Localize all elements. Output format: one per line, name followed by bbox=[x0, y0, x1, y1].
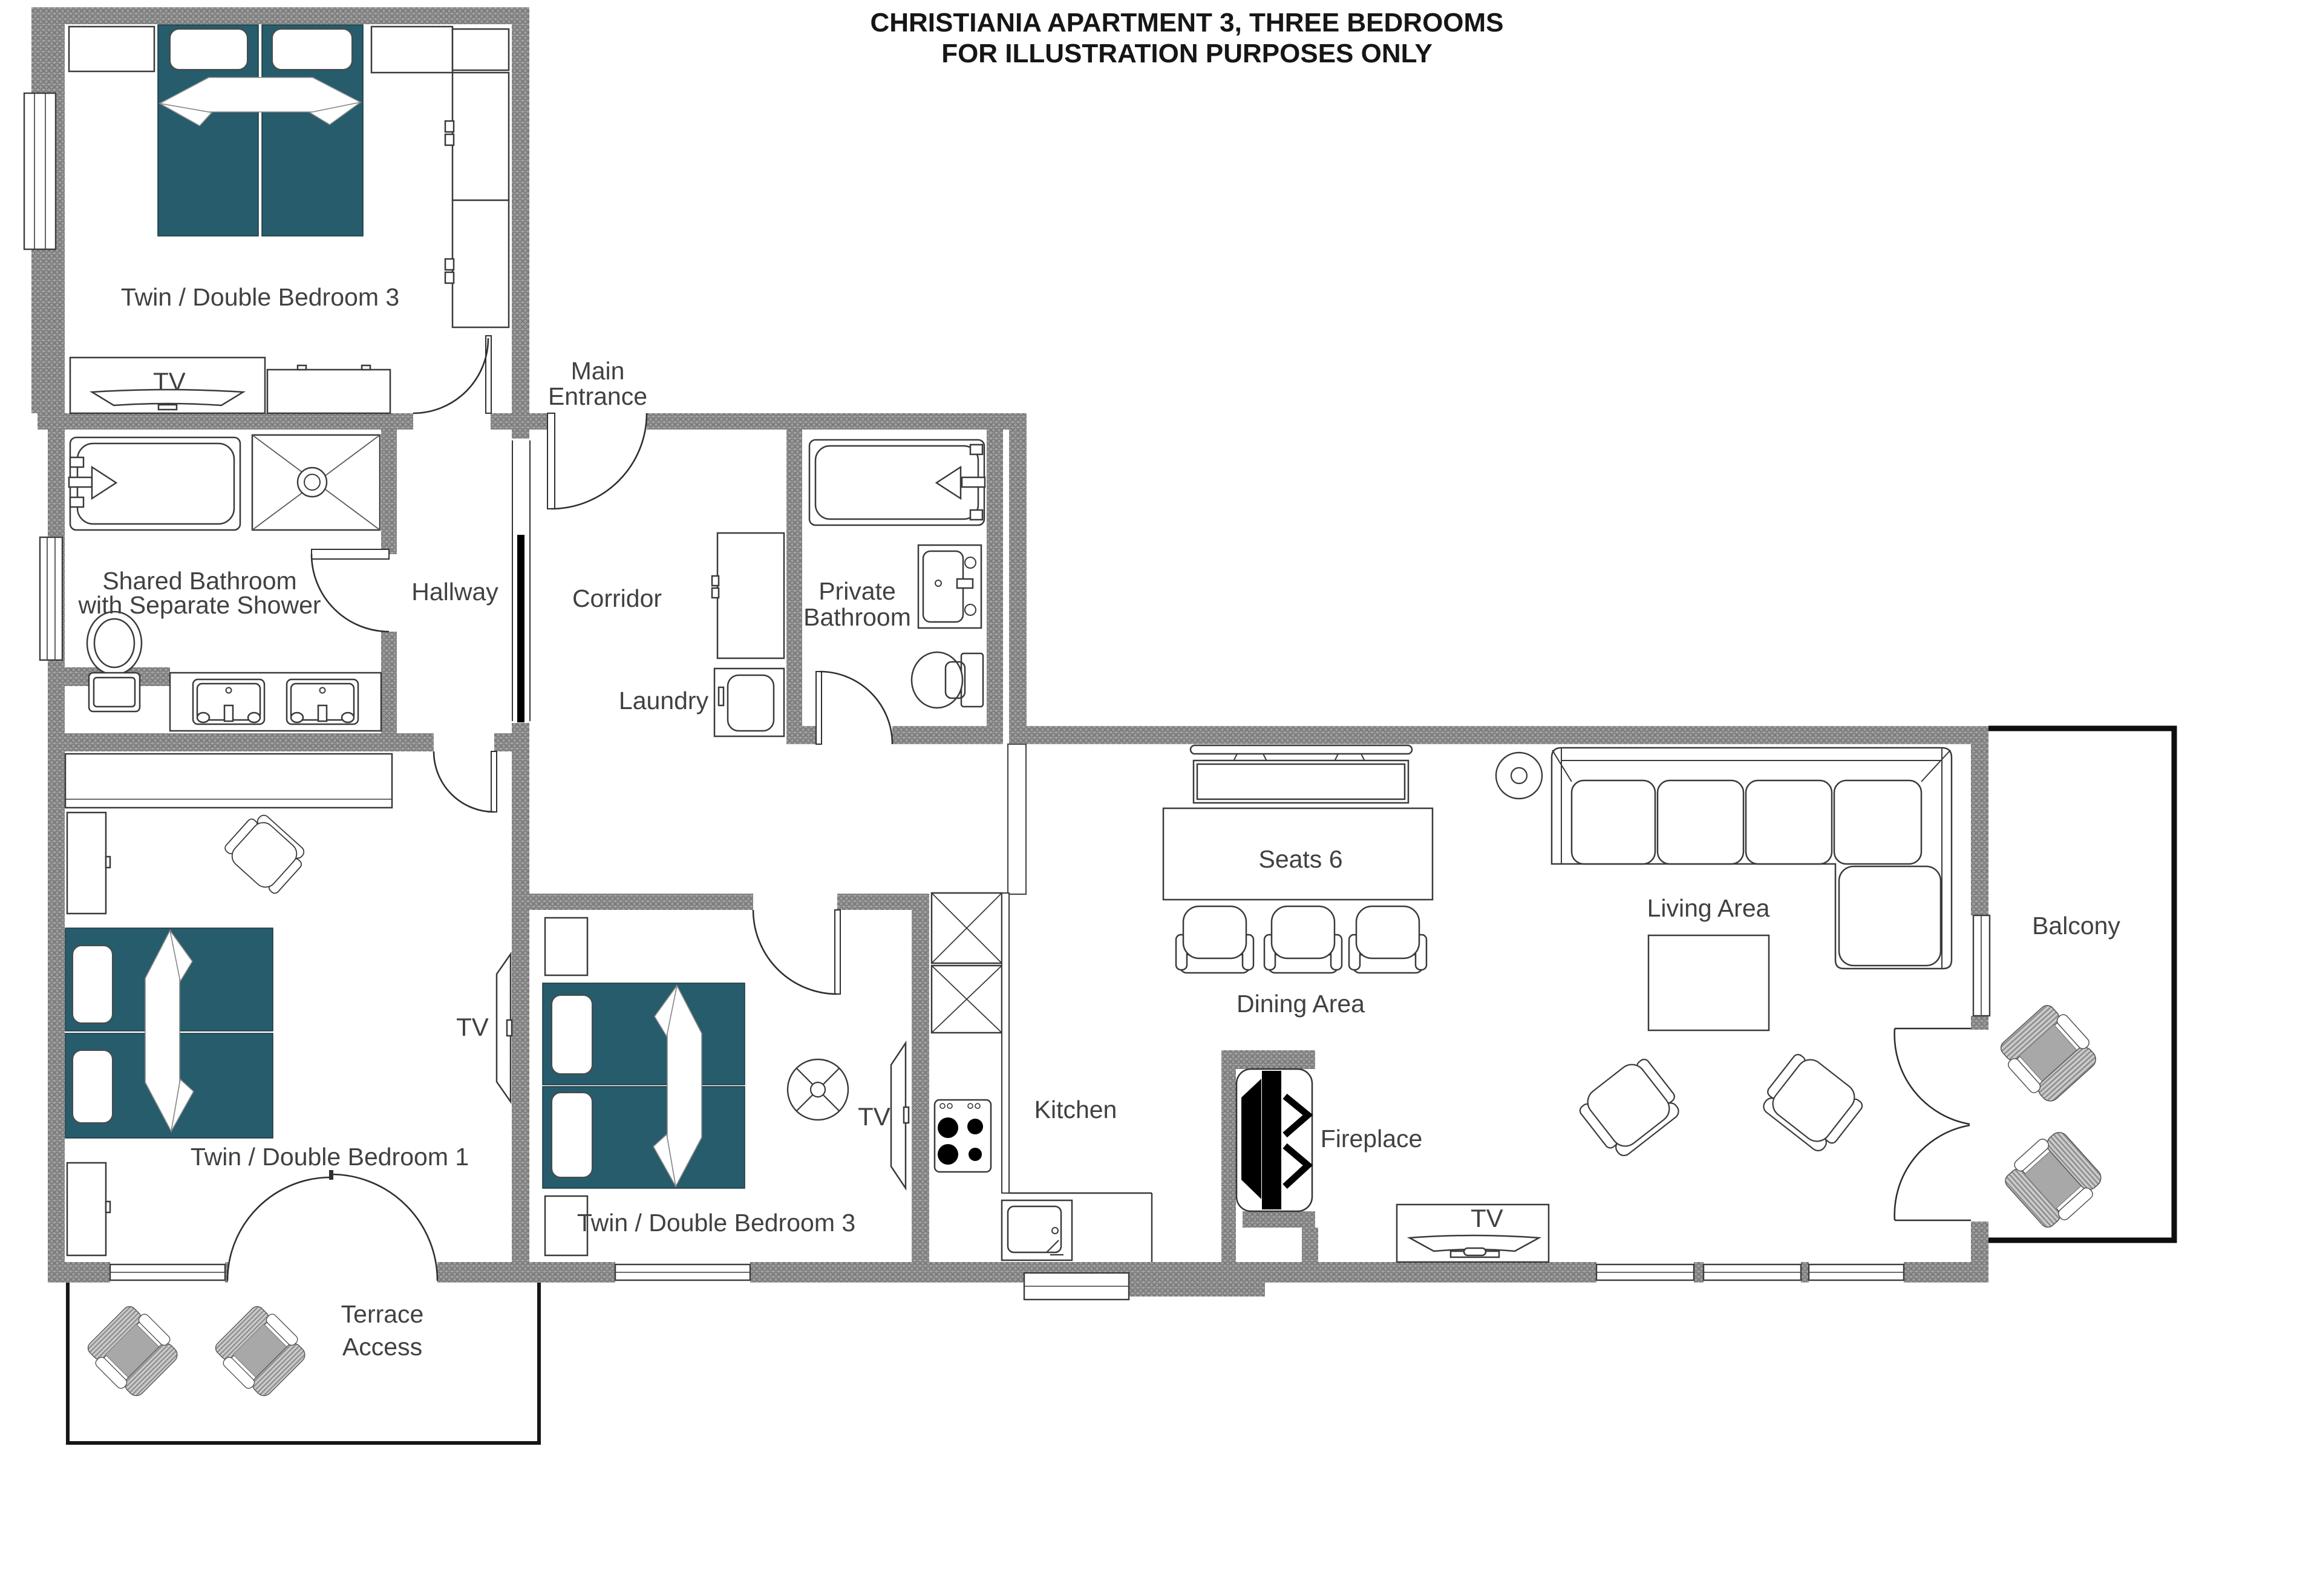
svg-text:Corridor: Corridor bbox=[572, 584, 662, 612]
svg-text:Balcony: Balcony bbox=[2032, 912, 2120, 940]
svg-text:TV: TV bbox=[858, 1102, 890, 1131]
svg-text:Living Area: Living Area bbox=[1647, 894, 1770, 922]
svg-text:Entrance: Entrance bbox=[548, 382, 647, 410]
svg-text:Kitchen: Kitchen bbox=[1034, 1096, 1117, 1123]
svg-text:with Separate Shower: with Separate Shower bbox=[77, 591, 321, 619]
svg-text:FOR ILLUSTRATION PURPOSES ONLY: FOR ILLUSTRATION PURPOSES ONLY bbox=[941, 39, 1433, 68]
svg-text:Dining Area: Dining Area bbox=[1237, 990, 1365, 1018]
svg-text:Hallway: Hallway bbox=[411, 578, 498, 606]
svg-text:Access: Access bbox=[342, 1333, 422, 1361]
svg-text:Main: Main bbox=[571, 357, 625, 385]
svg-text:Twin / Double Bedroom 1: Twin / Double Bedroom 1 bbox=[191, 1143, 469, 1171]
svg-text:Seats 6: Seats 6 bbox=[1258, 845, 1342, 873]
svg-text:Fireplace: Fireplace bbox=[1321, 1125, 1423, 1153]
svg-text:CHRISTIANIA APARTMENT 3, THREE: CHRISTIANIA APARTMENT 3, THREE BEDROOMS bbox=[870, 8, 1503, 38]
svg-text:Bathroom: Bathroom bbox=[803, 603, 911, 631]
svg-text:Twin / Double Bedroom 3: Twin / Double Bedroom 3 bbox=[121, 283, 399, 311]
svg-text:Terrace: Terrace bbox=[341, 1300, 424, 1328]
svg-text:Twin / Double Bedroom 3: Twin / Double Bedroom 3 bbox=[577, 1209, 855, 1237]
svg-text:TV: TV bbox=[153, 367, 186, 396]
svg-text:Laundry: Laundry bbox=[619, 687, 709, 715]
svg-text:TV: TV bbox=[1471, 1204, 1503, 1232]
svg-text:Private: Private bbox=[818, 577, 896, 605]
svg-text:TV: TV bbox=[456, 1013, 489, 1041]
